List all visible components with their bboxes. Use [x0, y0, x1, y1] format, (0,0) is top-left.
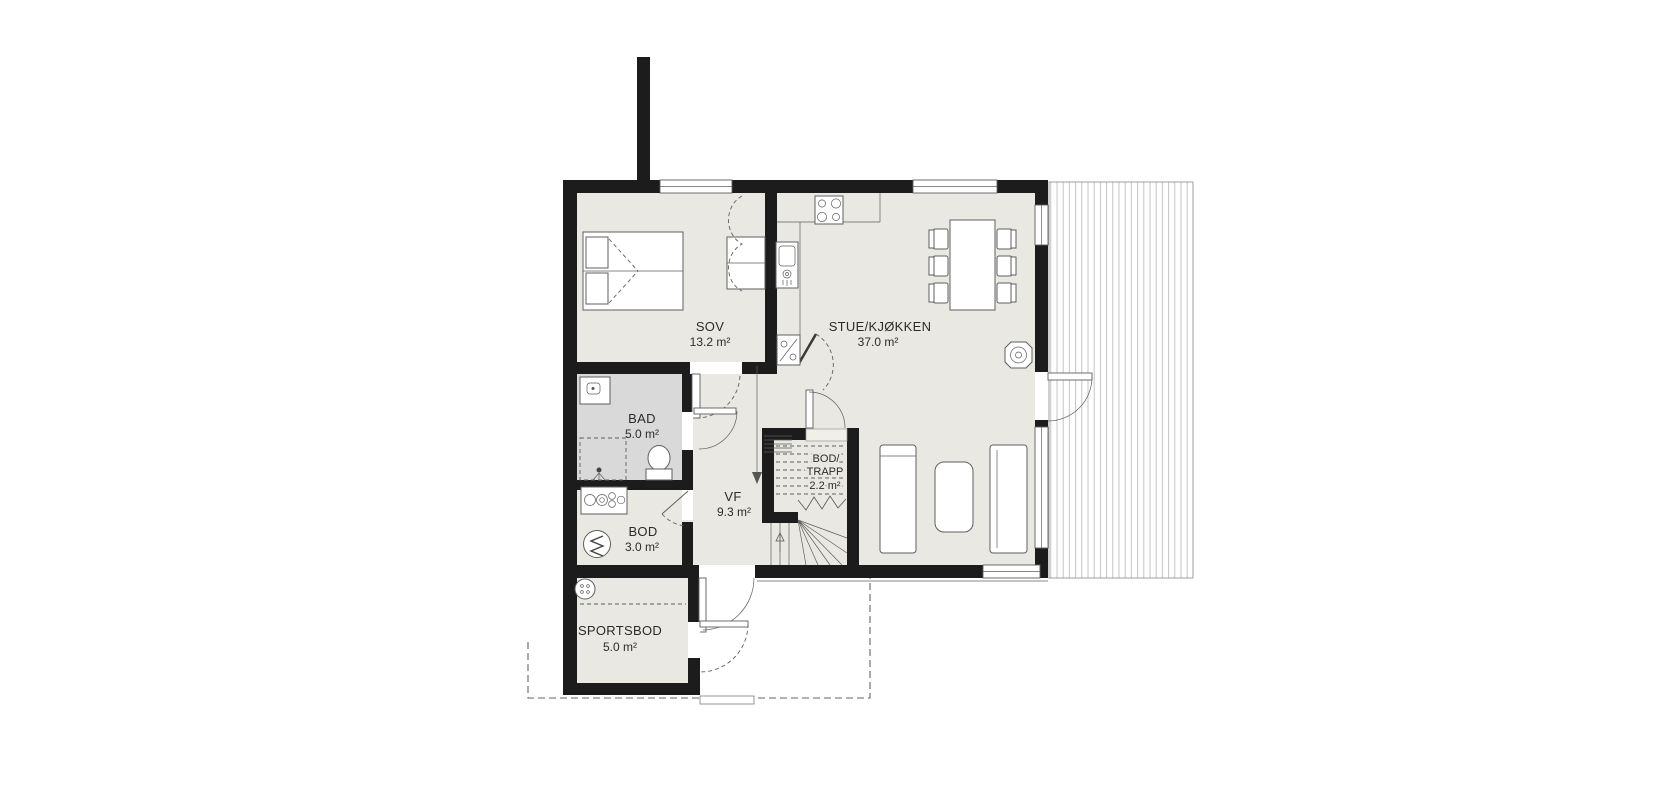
dining-chair [997, 256, 1016, 276]
wall-sov-kitchen [765, 193, 777, 362]
circle-marker [575, 579, 595, 599]
room-label-bod: BOD [628, 524, 657, 539]
entrance-step [700, 696, 754, 704]
sofa-left [880, 445, 916, 553]
dining-table [950, 220, 995, 310]
dining-chair [929, 256, 948, 276]
dining-chair [997, 229, 1016, 249]
wall-sportsbod-east-upper [688, 578, 700, 622]
room-label-bod-trapp-1: BOD/ [813, 453, 841, 465]
room-area-bod-trapp: 2.2 m² [809, 480, 841, 492]
wall-bottom [563, 565, 1048, 578]
wall-stair-left [762, 428, 774, 523]
window-sov-top [660, 180, 732, 193]
laundry-sink-unit [581, 487, 627, 514]
floor-plan-canvas: SOV 13.2 m² STUE/KJØKKEN 37.0 m² BAD 5.0… [0, 0, 1670, 800]
room-label-sportsbod: SPORTSBOD [578, 623, 662, 638]
stove-cooktop [815, 196, 843, 224]
room-area-bod: 3.0 m² [625, 540, 659, 554]
room-area-sportsbod: 5.0 m² [603, 640, 637, 654]
water-heater-icon [584, 531, 611, 558]
wall-sportsbod-east-lower [688, 658, 700, 695]
window-dining-top [913, 180, 997, 193]
wall-stair-right [847, 428, 859, 578]
window-right-upper [1035, 205, 1048, 245]
wall-stair-top [762, 428, 806, 440]
room-label-stue-kjokken: STUE/KJØKKEN [829, 319, 932, 334]
wall-bad-east-lower [682, 450, 693, 490]
wall-bod-east [682, 522, 693, 565]
wood-stove-icon [1005, 342, 1032, 368]
room-label-bad: BAD [628, 411, 656, 426]
double-bed [583, 232, 683, 310]
wall-sov-bad [563, 362, 777, 374]
window-right-lower [1035, 427, 1048, 548]
kitchen-sink [776, 242, 798, 288]
toilet [646, 446, 672, 481]
coffee-table [935, 462, 973, 532]
room-area-sov: 13.2 m² [690, 335, 731, 349]
shaft-symbol [777, 335, 800, 365]
dining-chair [929, 229, 948, 249]
sofa-right [990, 445, 1027, 553]
room-area-vf: 9.3 m² [717, 505, 751, 519]
wall-sportsbod-bottom [563, 683, 700, 695]
floor-plan-drawing: SOV 13.2 m² STUE/KJØKKEN 37.0 m² BAD 5.0… [0, 0, 1670, 800]
wall-left [563, 180, 577, 695]
dining-chair [929, 283, 948, 303]
room-area-stue-kjokken: 37.0 m² [858, 335, 899, 349]
wall-chimney-stub [637, 57, 650, 183]
wall-stair-foot [762, 512, 798, 523]
room-label-vf: VF [724, 489, 741, 504]
room-label-sov: SOV [696, 319, 724, 334]
stair-threshold [806, 429, 847, 441]
room-label-bod-trapp-2: TRAPP [807, 466, 844, 478]
window-bottom [983, 565, 1040, 578]
room-area-bad: 5.0 m² [625, 427, 659, 441]
wall-bad-east-upper [682, 374, 693, 412]
dining-chair [997, 283, 1016, 303]
bathroom-cabinet [580, 377, 610, 404]
